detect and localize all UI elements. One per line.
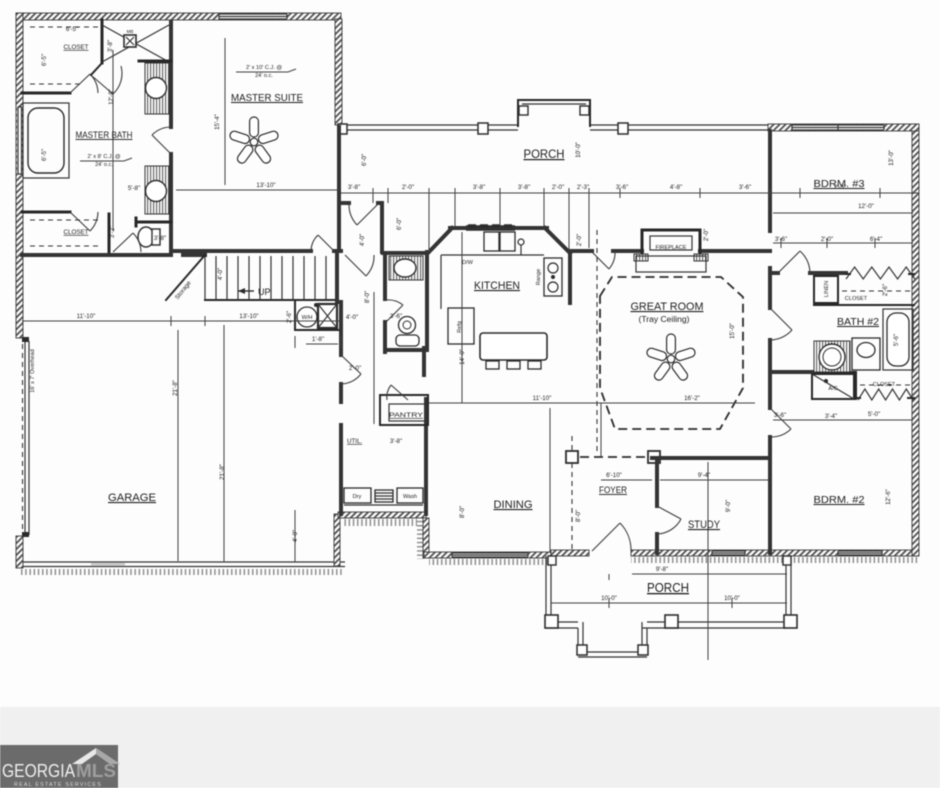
svg-text:2'-0": 2'-0" (821, 236, 833, 243)
svg-text:13'-10": 13'-10" (239, 313, 258, 320)
svg-text:Wash: Wash (403, 494, 417, 500)
svg-text:24' o.c.: 24' o.c. (255, 73, 273, 79)
svg-text:CLOSET: CLOSET (845, 296, 868, 302)
svg-text:GREAT ROOM: GREAT ROOM (631, 301, 704, 313)
svg-text:6'-5": 6'-5" (41, 54, 48, 66)
svg-text:3'-6": 3'-6" (775, 236, 787, 243)
svg-text:9'-4": 9'-4" (698, 472, 710, 479)
svg-text:8'-0": 8'-0" (364, 291, 371, 303)
svg-text:STUDY: STUDY (688, 519, 721, 531)
svg-text:6'-5": 6'-5" (41, 149, 48, 161)
svg-text:6'-4": 6'-4" (870, 236, 882, 243)
svg-text:MASTER SUITE: MASTER SUITE (231, 93, 303, 104)
svg-text:6'-0": 6'-0" (396, 218, 403, 230)
svg-text:3'-8": 3'-8" (348, 184, 360, 191)
svg-text:3'-8": 3'-8" (154, 235, 166, 242)
svg-text:A/C: A/C (828, 386, 837, 392)
svg-text:W/H: W/H (302, 315, 313, 321)
svg-text:Dry: Dry (353, 494, 362, 500)
svg-text:11'-10": 11'-10" (533, 395, 552, 402)
svg-text:12'-8": 12'-8" (108, 89, 115, 105)
svg-text:5'-8": 5'-8" (128, 185, 140, 192)
svg-text:15'-4": 15'-4" (214, 114, 221, 130)
svg-text:6'-0": 6'-0" (361, 154, 368, 166)
svg-text:9'-8": 9'-8" (656, 566, 668, 573)
svg-text:10'-0": 10'-0" (575, 142, 582, 158)
svg-text:2'-3": 2'-3" (577, 184, 589, 191)
svg-text:CLOSET: CLOSET (873, 382, 896, 388)
svg-text:2'-0": 2'-0" (703, 229, 710, 241)
svg-text:15'-0": 15'-0" (729, 323, 736, 339)
svg-text:Refg: Refg (457, 321, 463, 333)
svg-text:6'-5": 6'-5" (66, 26, 78, 33)
svg-text:PANTRY: PANTRY (389, 412, 423, 419)
svg-text:21'-8": 21'-8" (172, 380, 179, 396)
svg-text:14'-0": 14'-0" (459, 349, 466, 365)
svg-text:3'-8": 3'-8" (473, 184, 485, 191)
svg-text:2' x 8' C.J. @: 2' x 8' C.J. @ (88, 154, 121, 160)
svg-text:3'-6": 3'-6" (616, 184, 628, 191)
svg-text:REAL ESTATE SERVICES: REAL ESTATE SERVICES (14, 782, 102, 788)
svg-text:DINING: DINING (494, 499, 533, 511)
svg-text:GEORGIA: GEORGIA (2, 761, 75, 781)
svg-text:3'-8": 3'-8" (107, 40, 114, 52)
svg-text:FOYER: FOYER (599, 485, 627, 495)
svg-text:2'-0": 2'-0" (576, 234, 583, 246)
svg-text:D/W: D/W (462, 260, 474, 266)
svg-text:MB: MB (127, 29, 134, 34)
svg-text:8'-0": 8'-0" (575, 510, 582, 522)
svg-text:10'-0": 10'-0" (601, 595, 617, 602)
svg-text:16' x 7' Overhead: 16' x 7' Overhead (30, 349, 36, 393)
svg-text:KITCHEN: KITCHEN (474, 280, 520, 292)
svg-text:1'-8": 1'-8" (312, 336, 324, 343)
svg-text:24' o.c.: 24' o.c. (95, 162, 113, 168)
svg-text:4'-0": 4'-0" (359, 234, 366, 246)
svg-text:21'-8": 21'-8" (219, 464, 226, 480)
svg-text:4'-0": 4'-0" (346, 314, 358, 321)
svg-text:9'-0": 9'-0" (725, 500, 732, 512)
svg-text:10'-0": 10'-0" (724, 595, 740, 602)
svg-text:6'-10": 6'-10" (606, 472, 622, 479)
svg-text:2'-3": 2'-3" (834, 184, 846, 191)
svg-text:BATH #2: BATH #2 (837, 317, 879, 328)
svg-text:12'-6": 12'-6" (885, 489, 892, 505)
svg-text:CLOSET: CLOSET (64, 44, 89, 51)
svg-text:2' x 10' C.J. @: 2' x 10' C.J. @ (246, 65, 282, 71)
svg-text:3'-4": 3'-4" (825, 413, 837, 420)
svg-text:3'-6": 3'-6" (390, 313, 402, 320)
svg-text:4'-0": 4'-0" (217, 268, 224, 280)
svg-text:LINEN: LINEN (824, 281, 830, 297)
svg-text:2'-0": 2'-0" (402, 184, 414, 191)
svg-text:12'-0": 12'-0" (858, 203, 874, 210)
svg-text:2'-0": 2'-0" (349, 365, 361, 372)
svg-text:BDRM. #2: BDRM. #2 (814, 495, 865, 506)
svg-text:(Tray Ceiling): (Tray Ceiling) (639, 315, 690, 324)
svg-text:4'-0": 4'-0" (292, 530, 299, 542)
svg-text:3'-6": 3'-6" (774, 412, 786, 419)
svg-text:PORCH: PORCH (524, 147, 565, 161)
svg-text:Range: Range (536, 269, 542, 285)
svg-text:MASTER BATH: MASTER BATH (76, 130, 133, 140)
svg-text:2'-6": 2'-6" (286, 311, 293, 323)
svg-text:2'-0": 2'-0" (552, 184, 564, 191)
svg-text:11'-10": 11'-10" (77, 313, 96, 320)
svg-text:5'-6": 5'-6" (893, 334, 900, 346)
svg-text:CLOSET: CLOSET (64, 229, 89, 236)
svg-text:3'-6": 3'-6" (739, 184, 751, 191)
svg-text:GARAGE: GARAGE (108, 492, 156, 504)
svg-text:2'-6": 2'-6" (882, 284, 889, 296)
svg-text:3'-8": 3'-8" (518, 184, 530, 191)
svg-text:PORCH: PORCH (647, 580, 689, 595)
svg-text:13'-0": 13'-0" (888, 150, 895, 166)
svg-text:4'-8": 4'-8" (670, 184, 682, 191)
svg-text:16'-2": 16'-2" (684, 395, 700, 402)
svg-text:FIREPLACE: FIREPLACE (655, 245, 686, 251)
svg-text:8'-0": 8'-0" (459, 506, 466, 518)
svg-text:3'-2": 3'-2" (109, 226, 116, 238)
svg-text:UP: UP (258, 287, 271, 297)
svg-text:13'-10": 13'-10" (256, 182, 275, 189)
svg-text:5'-0": 5'-0" (868, 411, 880, 418)
svg-text:UTIL.: UTIL. (347, 438, 362, 445)
svg-text:3'-8": 3'-8" (390, 438, 402, 445)
svg-text:MLS: MLS (76, 761, 116, 781)
